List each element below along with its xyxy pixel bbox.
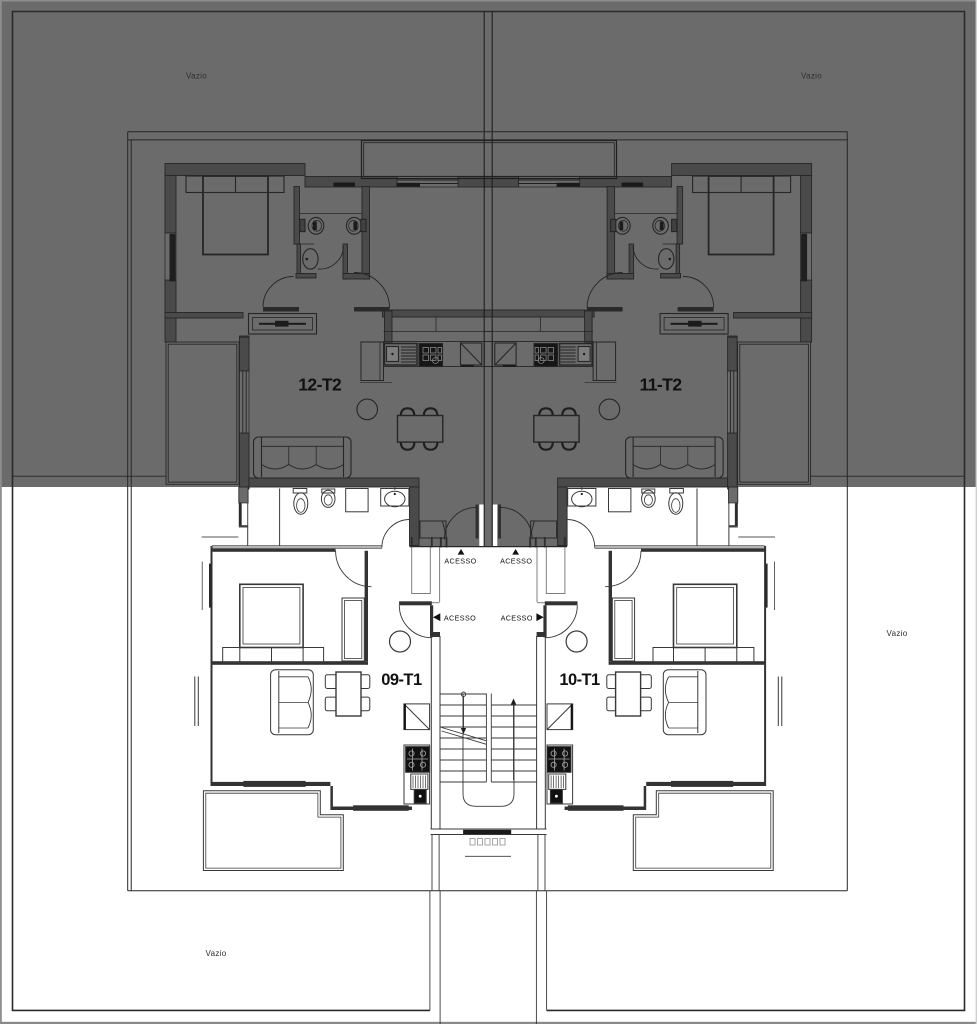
svg-text:Vazio: Vazio: [887, 629, 908, 638]
svg-text:ACESSO: ACESSO: [500, 557, 532, 566]
svg-text:10-T1: 10-T1: [559, 671, 600, 689]
svg-text:ACESSO: ACESSO: [444, 557, 476, 566]
svg-text:09-T1: 09-T1: [381, 671, 422, 689]
svg-text:Vazio: Vazio: [206, 949, 227, 958]
svg-text:12-T2: 12-T2: [298, 375, 342, 395]
svg-text:11-T2: 11-T2: [640, 375, 683, 395]
svg-text:Vazio: Vazio: [186, 72, 207, 81]
svg-text:Vazio: Vazio: [801, 72, 822, 81]
svg-text:ACESSO: ACESSO: [444, 614, 476, 623]
svg-text:ACESSO: ACESSO: [501, 614, 533, 623]
